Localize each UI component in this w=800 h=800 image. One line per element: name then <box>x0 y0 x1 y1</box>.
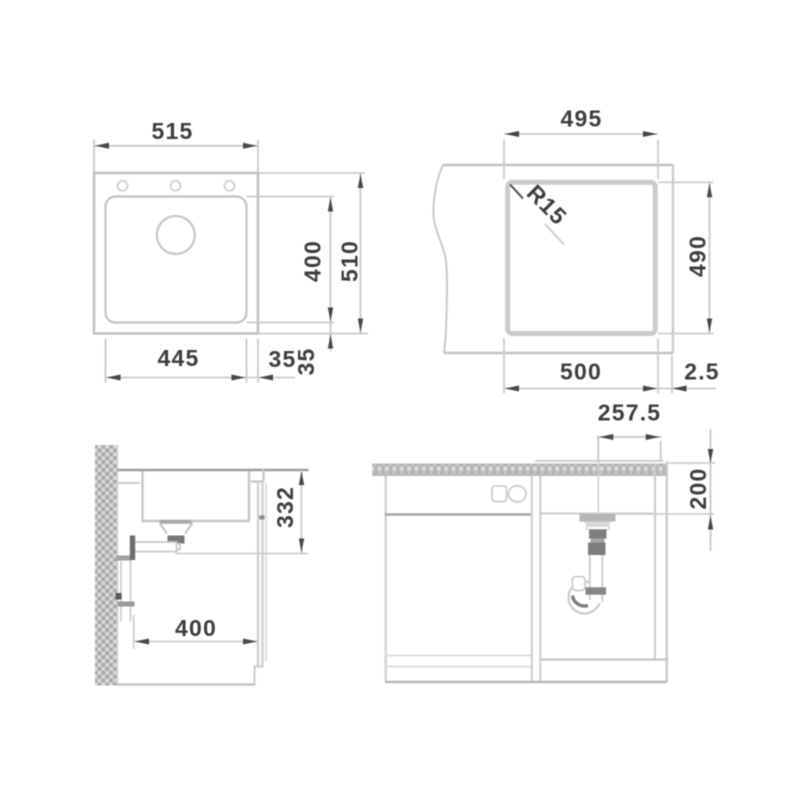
svg-text:35: 35 <box>293 348 319 376</box>
svg-text:500: 500 <box>560 359 602 385</box>
svg-text:445: 445 <box>158 345 200 371</box>
svg-text:257.5: 257.5 <box>598 400 662 426</box>
svg-text:400: 400 <box>300 240 326 282</box>
svg-text:2.5: 2.5 <box>684 359 720 385</box>
svg-text:332: 332 <box>272 486 298 528</box>
svg-text:400: 400 <box>175 615 217 641</box>
svg-text:495: 495 <box>561 106 603 132</box>
svg-text:510: 510 <box>337 240 363 282</box>
svg-text:200: 200 <box>685 468 711 510</box>
svg-text:515: 515 <box>152 118 194 144</box>
svg-text:490: 490 <box>685 235 711 277</box>
